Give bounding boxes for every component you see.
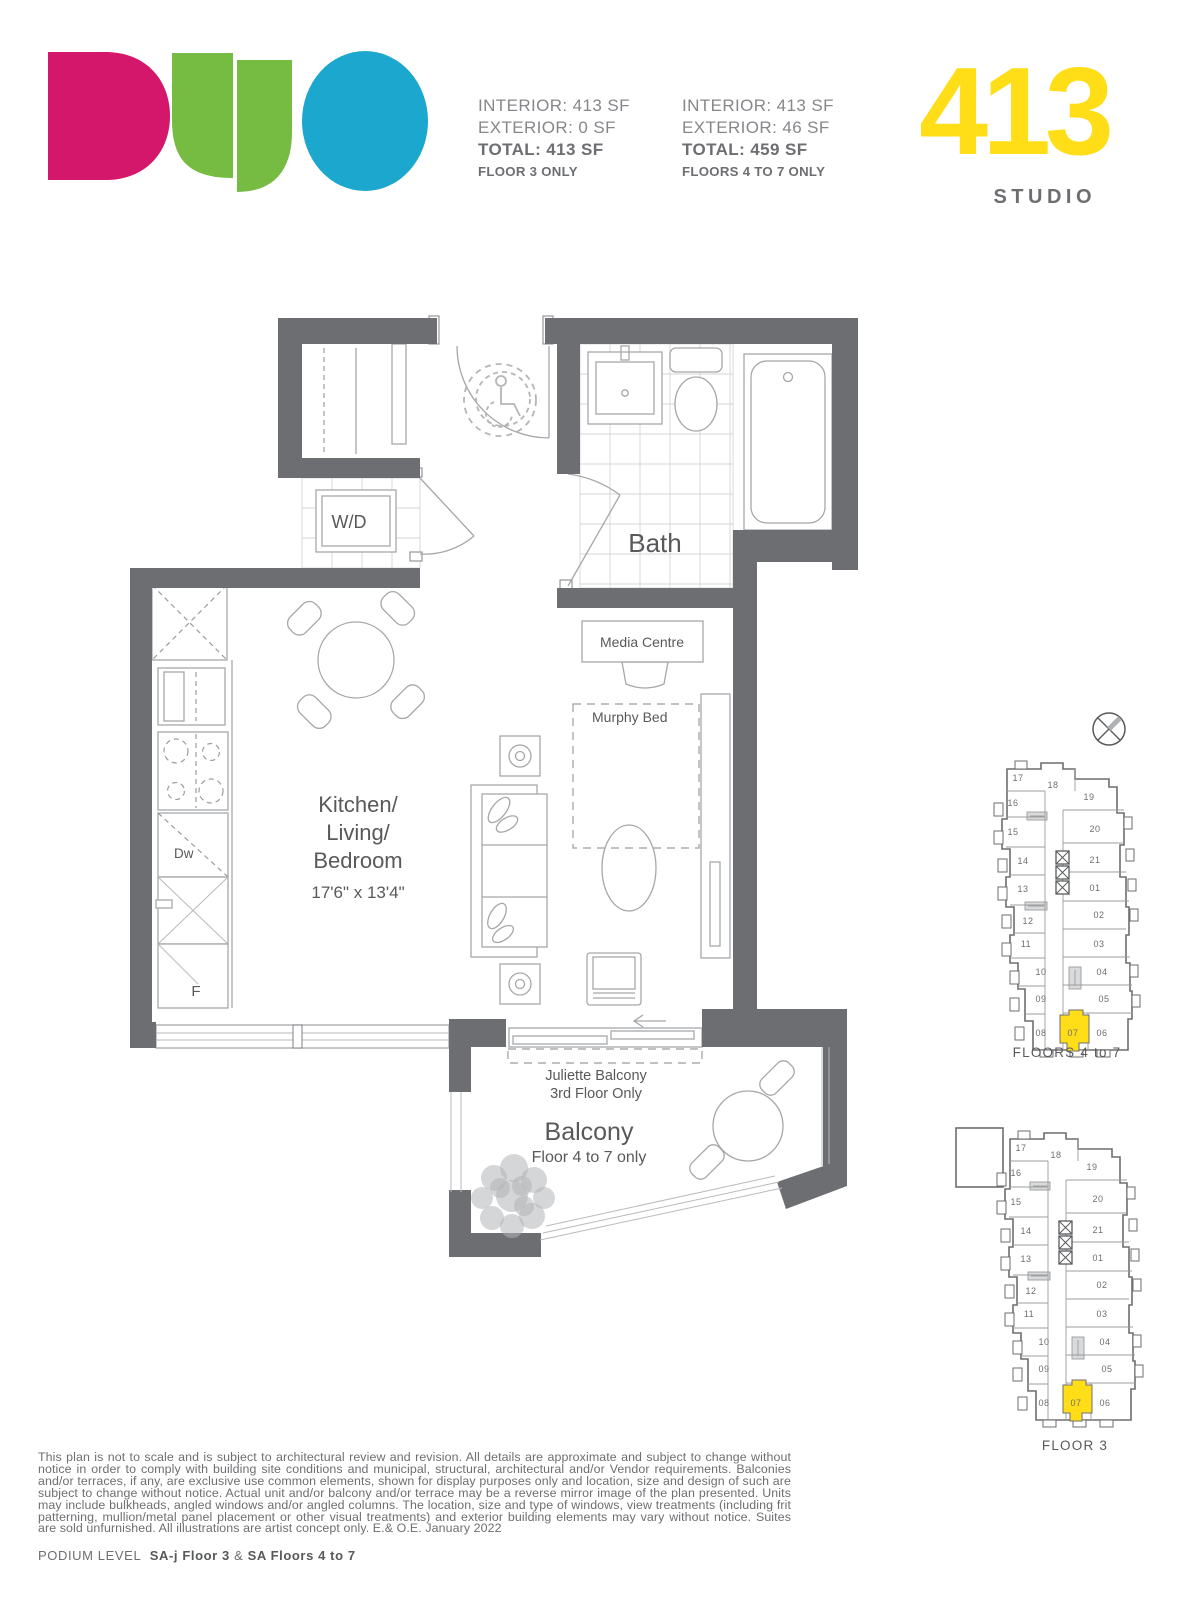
window-wall [156, 1025, 449, 1048]
floorplan-drawing: W/D [0, 0, 1183, 1600]
keyplan-unit-09: 09 [1035, 994, 1046, 1004]
kitchen: Dw F [152, 585, 232, 1008]
balcony-sub-label: Floor 4 to 7 only [532, 1149, 647, 1166]
balcony: Juliette Balcony 3rd Floor Only Balcony … [451, 1047, 829, 1240]
kitchen-sink [156, 877, 228, 944]
keyplan-unit-10: 10 [1035, 967, 1046, 977]
keyplan-unit-05: 05 [1101, 1364, 1112, 1374]
keyplan-floor-3-label: FLOOR 3 [1042, 1438, 1108, 1453]
podium-level-line: PODIUM LEVEL SA-j Floor 3 & SA Floors 4 … [38, 1548, 356, 1563]
keyplan-unit-19: 19 [1083, 792, 1094, 802]
cooktop [158, 732, 228, 810]
dishwasher-label: Dw [174, 846, 194, 861]
keyplan-unit-07: 07 [1067, 1028, 1078, 1038]
keyplan-unit-04: 04 [1099, 1337, 1110, 1347]
keyplan-unit-07: 07 [1070, 1398, 1081, 1408]
keyplan-unit-09: 09 [1038, 1364, 1049, 1374]
keyplan-unit-20: 20 [1092, 1194, 1103, 1204]
bath-sink [588, 346, 662, 424]
kitchen-cabinet [158, 668, 225, 725]
juliette-balcony-outline [508, 1049, 702, 1063]
entry-closet [324, 344, 406, 454]
keyplan-unit-15: 15 [1010, 1197, 1021, 1207]
keyplan-unit-13: 13 [1020, 1254, 1031, 1264]
door-swing-arrow [634, 1015, 666, 1027]
media-centre: Media Centre [582, 621, 703, 688]
washer-dryer-closet: W/D [316, 468, 474, 561]
keyplan-unit-12: 12 [1025, 1286, 1036, 1296]
toilet [670, 348, 722, 431]
dishwasher: Dw [158, 813, 228, 877]
keyplan-unit-16: 16 [1010, 1168, 1021, 1178]
room-label: Kitchen/ Living/ Bedroom 17'6" x 13'4" [311, 792, 404, 902]
keyplan-unit-18: 18 [1047, 780, 1058, 790]
keyplan-unit-21: 21 [1089, 855, 1100, 865]
keyplan-unit-05: 05 [1098, 994, 1109, 1004]
room-dimensions: 17'6" x 13'4" [311, 883, 404, 902]
entry-door [429, 316, 553, 438]
keyplan-unit-16: 16 [1007, 798, 1018, 808]
keyplan-unit-11: 11 [1024, 1309, 1034, 1319]
keyplan-floor-3: 1716181915201421130112021103100409050807… [956, 1128, 1143, 1427]
side-table-lamp [500, 964, 540, 1004]
svg-text:Kitchen/: Kitchen/ [318, 792, 398, 817]
compass-icon [1093, 713, 1125, 745]
keyplan-unit-03: 03 [1096, 1309, 1107, 1319]
svg-text:Murphy Bed: Murphy Bed [592, 709, 667, 725]
keyplan-unit-06: 06 [1096, 1028, 1107, 1038]
keyplan-floors-4-7: 1716181915201421130112021103100409050807… [994, 761, 1140, 1057]
bathtub [744, 354, 832, 530]
fridge: F [158, 944, 228, 1008]
keyplan-unit-10: 10 [1038, 1337, 1049, 1347]
balcony-sliding-door [509, 1015, 702, 1047]
keyplan-unit-06: 06 [1099, 1398, 1110, 1408]
keyplan-unit-02: 02 [1096, 1280, 1107, 1290]
bath-label: Bath [628, 528, 682, 558]
keyplan-unit-11: 11 [1021, 939, 1031, 949]
podium-plan2: SA Floors 4 to 7 [248, 1548, 356, 1563]
keyplan-unit-01: 01 [1092, 1253, 1103, 1263]
armchair [587, 953, 641, 1005]
keyplan-unit-03: 03 [1093, 939, 1104, 949]
keyplan-unit-13: 13 [1017, 884, 1028, 894]
podium-amp: & [234, 1548, 243, 1563]
keyplan-unit-08: 08 [1038, 1398, 1049, 1408]
keyplan-unit-17: 17 [1015, 1143, 1026, 1153]
rug [602, 825, 656, 911]
bath-door [560, 474, 620, 589]
keyplan-unit-21: 21 [1092, 1225, 1103, 1235]
keyplan-unit-02: 02 [1093, 910, 1104, 920]
keyplan-unit-01: 01 [1089, 883, 1100, 893]
balcony-table [686, 1057, 797, 1182]
floorplan-page: INTERIOR: 413 SF EXTERIOR: 0 SF TOTAL: 4… [0, 0, 1183, 1600]
keyplan-floors-4-7-label: FLOORS 4 to 7 [1013, 1045, 1122, 1060]
svg-text:Bedroom: Bedroom [313, 848, 402, 873]
legal-disclaimer: This plan is not to scale and is subject… [38, 1452, 791, 1535]
living-furniture [471, 736, 656, 1005]
wardrobe [701, 694, 730, 958]
dining-table [284, 588, 428, 732]
svg-text:Living/: Living/ [326, 820, 390, 845]
keyplan-unit-19: 19 [1086, 1162, 1097, 1172]
keyplan-unit-14: 14 [1017, 856, 1028, 866]
podium-prefix: PODIUM LEVEL [38, 1548, 141, 1563]
fridge-label: F [191, 983, 200, 1000]
keyplan-unit-04: 04 [1096, 967, 1107, 977]
keyplan-unit-08: 08 [1035, 1028, 1046, 1038]
side-table-lamp [500, 736, 540, 776]
svg-text:Media Centre: Media Centre [600, 634, 684, 650]
pantry-closet [152, 585, 227, 660]
sofa [471, 785, 547, 957]
keyplan-unit-17: 17 [1012, 773, 1023, 783]
keyplan-unit-12: 12 [1022, 916, 1033, 926]
keyplan-unit-14: 14 [1020, 1226, 1031, 1236]
juliette-label2: 3rd Floor Only [550, 1086, 643, 1102]
wd-label: W/D [332, 512, 367, 532]
balcony-label: Balcony [545, 1118, 634, 1146]
juliette-label: Juliette Balcony [545, 1068, 647, 1084]
tree [471, 1154, 555, 1238]
keyplan-unit-18: 18 [1050, 1150, 1061, 1160]
keyplan-unit-20: 20 [1089, 824, 1100, 834]
keyplan-unit-15: 15 [1007, 827, 1018, 837]
podium-plan1: SA-j Floor 3 [150, 1548, 230, 1563]
